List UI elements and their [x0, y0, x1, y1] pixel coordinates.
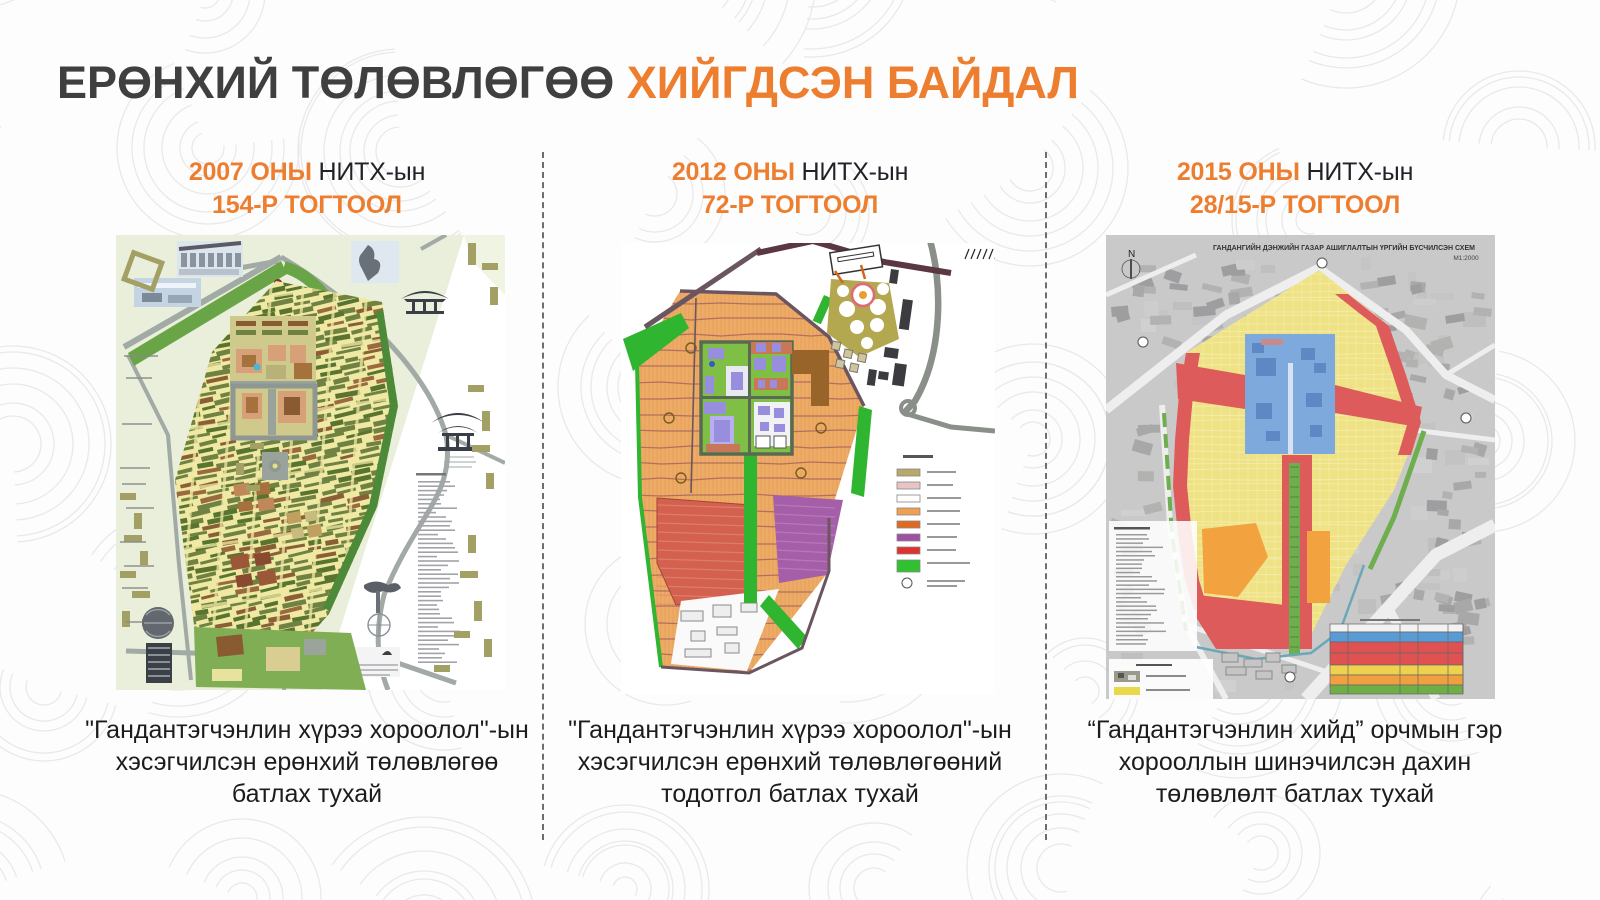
svg-text:М1:2000: М1:2000 — [1453, 255, 1479, 262]
svg-text:N: N — [1128, 249, 1135, 260]
svg-text:ГАНДАНГИЙН ДЭНЖИЙН ГАЗАР АШИГЛ: ГАНДАНГИЙН ДЭНЖИЙН ГАЗАР АШИГЛАЛТЫН ҮРГИ… — [1213, 243, 1475, 252]
